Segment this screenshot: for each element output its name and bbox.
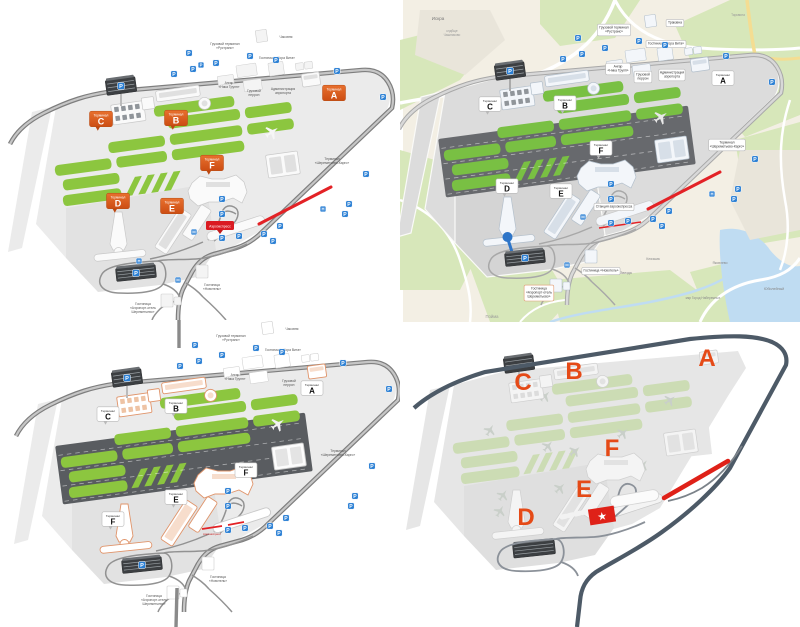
svg-text:P: P xyxy=(278,224,282,230)
svg-text:P: P xyxy=(178,364,182,370)
svg-text:H: H xyxy=(710,192,713,197)
svg-text:P: P xyxy=(576,36,580,42)
svg-text:P: P xyxy=(248,54,252,60)
svg-text:Гостиница«Новотель»: Гостиница«Новотель» xyxy=(209,575,227,583)
svg-text:F: F xyxy=(599,146,604,155)
svg-text:P: P xyxy=(370,464,374,470)
svg-text:P: P xyxy=(254,346,258,352)
svg-text:P: P xyxy=(753,157,757,163)
svg-text:P: P xyxy=(343,212,347,218)
svg-text:Гостиница «Новотель»: Гостиница «Новотель» xyxy=(584,269,619,273)
svg-text:P: P xyxy=(226,528,230,534)
svg-text:Грузовой терминал«Рустранс»: Грузовой терминал«Рустранс» xyxy=(216,334,246,342)
svg-text:P: P xyxy=(651,217,655,223)
svg-text:C: C xyxy=(487,102,493,111)
svg-text:P: P xyxy=(220,197,224,203)
svg-text:B: B xyxy=(565,358,582,385)
svg-text:P: P xyxy=(134,271,138,277)
svg-text:B: B xyxy=(173,404,179,413)
svg-text:F: F xyxy=(244,468,249,477)
svg-text:P: P xyxy=(262,232,266,238)
svg-text:P: P xyxy=(268,524,272,530)
svg-text:P: P xyxy=(609,221,613,227)
svg-text:P: P xyxy=(220,212,224,218)
svg-text:P: P xyxy=(364,172,368,178)
svg-text:P: P xyxy=(609,182,613,188)
svg-text:★: ★ xyxy=(596,510,608,523)
svg-text:D: D xyxy=(517,504,534,531)
svg-text:H: H xyxy=(137,259,140,264)
svg-text:P: P xyxy=(347,202,351,208)
svg-text:P: P xyxy=(172,72,176,78)
svg-text:P: P xyxy=(603,46,607,52)
svg-text:F: F xyxy=(605,435,620,462)
svg-text:Гостиница«Аэропорт-отельШереме: Гостиница«Аэропорт-отельШереметьево» xyxy=(141,594,167,606)
svg-text:P: P xyxy=(197,359,201,365)
svg-text:P: P xyxy=(226,489,230,495)
svg-text:M: M xyxy=(192,230,196,235)
svg-text:P: P xyxy=(663,43,667,49)
svg-text:P: P xyxy=(243,526,247,532)
svg-text:P: P xyxy=(736,187,740,193)
svg-text:Гостиница«Новотель»: Гостиница«Новотель» xyxy=(203,283,221,291)
svg-text:Часовня: Часовня xyxy=(286,327,299,331)
svg-text:B: B xyxy=(173,116,180,126)
svg-text:P: P xyxy=(770,80,774,86)
svg-text:A: A xyxy=(331,91,338,101)
svg-text:P: P xyxy=(237,234,241,240)
svg-text:P: P xyxy=(226,504,230,510)
svg-text:A: A xyxy=(698,345,715,372)
svg-text:C: C xyxy=(514,369,531,396)
svg-text:P: P xyxy=(349,504,353,510)
svg-text:P: P xyxy=(353,494,357,500)
svg-text:P: P xyxy=(580,52,584,58)
svg-text:P: P xyxy=(523,256,527,262)
svg-text:Гостиница«Аэропорт-отельШереме: Гостиница«Аэропорт-отельШереметьево» xyxy=(130,302,156,314)
svg-text:Яковлево: Яковлево xyxy=(712,261,727,265)
svg-text:P: P xyxy=(609,197,613,203)
svg-text:P: P xyxy=(341,361,345,367)
svg-text:P: P xyxy=(125,376,129,382)
svg-text:M: M xyxy=(581,215,585,220)
svg-text:P: P xyxy=(561,57,565,63)
svg-text:Грузовой терминал«Рустранс»: Грузовой терминал«Рустранс» xyxy=(210,42,240,50)
svg-text:мкр Город Набережных: мкр Город Набережных xyxy=(686,296,721,300)
svg-text:P: P xyxy=(191,67,195,73)
svg-text:P: P xyxy=(626,219,630,225)
svg-text:Часовня: Часовня xyxy=(280,35,293,39)
svg-text:C: C xyxy=(98,117,105,127)
svg-text:P: P xyxy=(200,63,203,68)
svg-text:P: P xyxy=(220,353,224,359)
svg-text:A: A xyxy=(720,76,726,85)
svg-text:E: E xyxy=(558,189,564,198)
svg-text:A: A xyxy=(309,386,315,395)
svg-text:D: D xyxy=(115,198,122,208)
svg-text:C: C xyxy=(105,412,111,421)
svg-text:Звезда: Звезда xyxy=(620,271,632,275)
svg-text:P: P xyxy=(271,239,275,245)
svg-text:P: P xyxy=(220,236,224,242)
svg-text:P: P xyxy=(284,516,288,522)
svg-text:Аэроэкспресс: Аэроэкспресс xyxy=(203,532,222,536)
svg-text:Грузовойперрон: Грузовойперрон xyxy=(247,89,261,97)
svg-text:Грузовойперрон: Грузовойперрон xyxy=(282,379,296,387)
svg-text:Клязьма: Клязьма xyxy=(646,257,659,261)
svg-text:P: P xyxy=(140,563,144,569)
svg-text:P: P xyxy=(119,84,123,90)
svg-text:H: H xyxy=(321,207,324,212)
svg-text:P: P xyxy=(724,54,728,60)
svg-text:E: E xyxy=(169,203,175,213)
svg-text:Станция аэроэкспресса: Станция аэроэкспресса xyxy=(596,205,633,209)
svg-text:Аэроэкспресс: Аэроэкспресс xyxy=(209,225,231,229)
svg-text:P: P xyxy=(277,531,281,537)
svg-text:B: B xyxy=(562,101,568,110)
svg-text:P: P xyxy=(335,69,339,75)
svg-text:P: P xyxy=(381,95,385,101)
svg-text:P: P xyxy=(187,51,191,57)
svg-text:P: P xyxy=(193,343,197,349)
svg-text:F: F xyxy=(111,517,116,526)
svg-text:P: P xyxy=(387,387,391,393)
svg-text:P: P xyxy=(508,69,512,75)
svg-text:P: P xyxy=(280,350,284,356)
svg-text:P: P xyxy=(214,61,218,67)
svg-text:P: P xyxy=(660,224,664,230)
svg-text:D: D xyxy=(504,184,510,193)
svg-text:E: E xyxy=(173,495,179,504)
svg-text:Тарквина: Тарквина xyxy=(731,13,745,17)
svg-text:Пойма: Пойма xyxy=(486,314,500,319)
svg-text:Юбилейный: Юбилейный xyxy=(764,287,784,291)
svg-text:Тракзвна: Тракзвна xyxy=(668,21,682,25)
svg-text:F: F xyxy=(209,160,215,170)
svg-text:P: P xyxy=(732,197,736,203)
svg-text:M: M xyxy=(565,263,569,268)
svg-text:Искра: Искра xyxy=(432,16,445,21)
svg-text:P: P xyxy=(274,58,278,64)
svg-text:P: P xyxy=(637,39,641,45)
svg-text:P: P xyxy=(667,209,671,215)
svg-text:E: E xyxy=(576,476,592,503)
svg-text:M: M xyxy=(176,278,180,283)
svg-text:Грузовойперрон: Грузовойперрон xyxy=(636,73,650,81)
